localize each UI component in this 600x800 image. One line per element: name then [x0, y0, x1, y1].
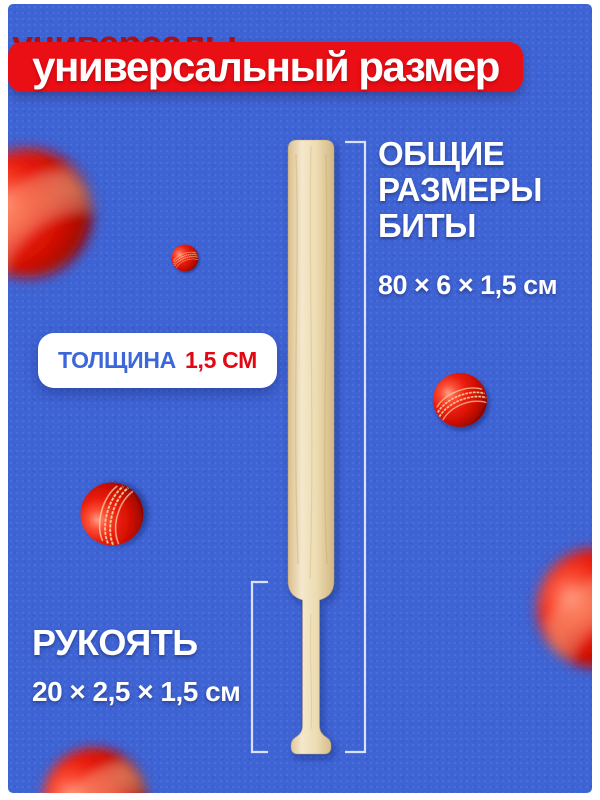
overall-dimensions-value: 80 × 6 × 1,5 см [378, 270, 557, 301]
cricket-ball-blur-bottom-right-icon [515, 526, 592, 690]
overall-title-line3: БИТЫ [378, 208, 557, 244]
handle-length-bracket [252, 582, 268, 752]
cricket-ball-left-icon [73, 475, 150, 552]
overall-title-line2: РАЗМЕРЫ [378, 172, 557, 208]
overall-length-bracket [345, 142, 365, 752]
banner-label: универсальный размер [32, 43, 499, 91]
handle-value: 20 × 2,5 × 1,5 см [32, 676, 240, 708]
product-card: универсальный универсальный размер ОБЩИЕ… [8, 4, 592, 793]
cricket-ball-small-icon [168, 241, 203, 276]
thickness-value: 1,5 СМ [185, 347, 257, 374]
cricket-bat [288, 140, 334, 754]
thickness-label: ТОЛЩИНА [58, 347, 176, 374]
handle-title: РУКОЯТЬ [32, 622, 240, 664]
cricket-ball-right-icon [425, 365, 495, 435]
overall-dimensions-block: ОБЩИЕ РАЗМЕРЫ БИТЫ 80 × 6 × 1,5 см [378, 136, 557, 301]
overall-dimensions-title: ОБЩИЕ РАЗМЕРЫ БИТЫ [378, 136, 557, 244]
cricket-ball-blur-top-left-icon [8, 123, 118, 303]
handle-dimensions-block: РУКОЯТЬ 20 × 2,5 × 1,5 см [32, 622, 240, 708]
cricket-ball-blur-bottom-left-icon [21, 726, 169, 793]
overall-title-line1: ОБЩИЕ [378, 136, 557, 172]
thickness-pill: ТОЛЩИНА 1,5 СМ [38, 333, 277, 388]
top-banner: универсальный размер [8, 42, 523, 92]
